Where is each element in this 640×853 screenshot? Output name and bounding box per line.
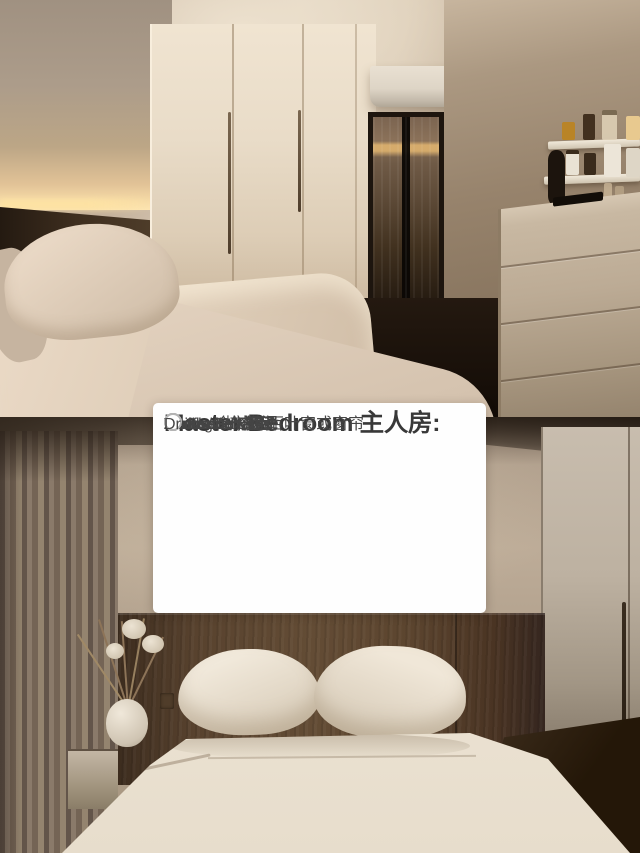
candle (626, 148, 640, 177)
dresser-drawers (498, 192, 640, 417)
dried-flower (122, 619, 146, 639)
top-wall-left (0, 0, 172, 210)
nightstand (68, 749, 118, 809)
perfume-bottle (602, 110, 617, 140)
perfume-bottle (562, 122, 575, 140)
perfume-bottle (566, 150, 579, 175)
dried-branches (96, 613, 180, 709)
candle (604, 144, 621, 177)
white-vase (106, 699, 148, 747)
photo-top-master-bedroom (0, 0, 640, 417)
dried-flower (142, 635, 164, 653)
glass-door (368, 112, 444, 306)
perfume-bottle (583, 114, 595, 140)
candle (626, 116, 640, 140)
wardrobe-handle (298, 110, 301, 212)
wardrobe-handle (228, 112, 231, 254)
screenshot-root: Master Bedroom 主人房: Mattress 床褥 Bedframe… (0, 0, 640, 853)
perfume-bottle (584, 153, 596, 175)
checklist-item-label: Dresser 梳妆台* (164, 410, 279, 434)
checklist-card: Master Bedroom 主人房: Mattress 床褥 Bedframe… (153, 403, 486, 613)
dried-flower (106, 643, 124, 659)
